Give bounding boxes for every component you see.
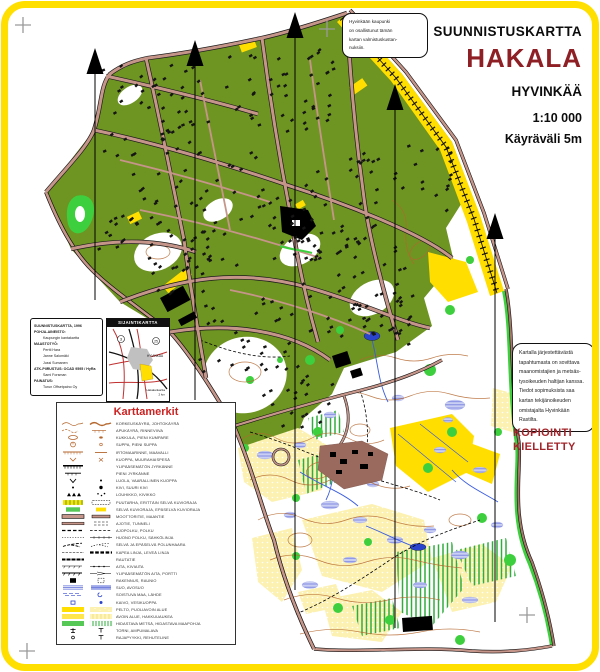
legend-label: HIDASTAVA METSÄ, HIDASTAVA MAAPOHJA xyxy=(116,621,201,626)
railway-symbol xyxy=(60,556,116,563)
locator-caption: Hakalankartta xyxy=(146,388,165,392)
legend-row: RAUTATIE xyxy=(57,556,235,563)
track-symbol xyxy=(60,527,116,534)
legend-row: RAJAPYYKKI, REHUTELINE xyxy=(57,634,235,641)
text-line: maanomistajien ja metsäs- xyxy=(519,368,588,378)
legend-row: SUPPA, PIENI SUPPA xyxy=(57,441,235,448)
contour-symbol xyxy=(60,420,116,427)
locator-caption-scale: 2 km xyxy=(158,393,165,397)
legend-box: Karttamerkit KORKEUSKÄYRÄ, JOHTOKÄYRÄAPU… xyxy=(56,402,236,645)
registration-cross xyxy=(15,17,31,33)
legend-row: AJOPOLKU, POLKU xyxy=(57,527,235,534)
legend-row: PUUTARHA, ERITTÄIN SELVÄ KUVIORAJA xyxy=(57,499,235,506)
junction-symbol xyxy=(60,541,116,548)
legend-row: MOOTTORITIE, MAANTIE xyxy=(57,513,235,520)
legend-label: YLIPÄÄSEMÄTÖN JYRKÄNNE xyxy=(116,464,173,469)
legend-label: KORKEUSKÄYRÄ, JOHTOKÄYRÄ xyxy=(116,421,179,426)
legend-label: YLIPÄÄSEMÄTÖN AITA, PORTTI xyxy=(116,571,177,576)
legend-label: LOUHIKKO, KIVIKKO xyxy=(116,492,156,497)
well-symbol xyxy=(60,599,116,606)
legend-label: SUPPA, PIENI SUPPA xyxy=(116,442,157,447)
legend-row: SELVÄ KUVIORAJA, EPÄSELVÄ KUVIORAJA xyxy=(57,506,235,513)
legend-row: KUOPPA, MUURAHAISPESÄ xyxy=(57,456,235,463)
locator-box: SIJAINTIKARTTA 3 25 HYVINKÄÄ Hakalankart… xyxy=(106,318,170,402)
legend-row: KAIVO, VESIKUOPPA xyxy=(57,599,235,606)
legend-label: MOOTTORITIE, MAANTIE xyxy=(116,514,164,519)
legend-row: HUONO POLKU, SÄHKÖLINJA xyxy=(57,534,235,541)
legend-label: AJOTIE, TUNNELI xyxy=(116,521,150,526)
legend-label: SELVÄ KUVIORAJA, EPÄSELVÄ KUVIORAJA xyxy=(116,507,200,512)
knoll-symbol xyxy=(60,434,116,441)
map-sheet: SUUNNISTUSKARTTA HAKALA HYVINKÄÄ 1:10 00… xyxy=(0,0,600,672)
legend-label: TORNI, AMPUMALAVA xyxy=(116,628,158,633)
text-line: omistajalta Hyvinkään xyxy=(519,407,588,417)
legend-row: TORNI, AMPUMALAVA xyxy=(57,627,235,634)
legend-row: SOISTUVA MAA, LÄHDE xyxy=(57,591,235,598)
permissions-note: Kartalla järjestettävästätapahtumasta on… xyxy=(512,343,595,432)
legend-label: APUKÄYRÄ, RINNEVIIVA xyxy=(116,428,163,433)
fence-symbol xyxy=(60,563,116,570)
legend-label: IRTOMAARINNE, MAAVALLI xyxy=(116,450,169,455)
legend-label: PIENI JYRKÄNNE xyxy=(116,471,149,476)
credit-line: ATK-PIIRUSTUS: OCAD 9595 / HyRa xyxy=(34,366,99,372)
legend-label: SUO, AVOSUO xyxy=(116,585,144,590)
text-line: nuksiin. xyxy=(349,44,421,53)
map-city: HYVINKÄÄ xyxy=(433,84,582,99)
text-line: Kartalla järjestettävästä xyxy=(519,349,588,359)
legend-label: AJOPOLKU, POLKU xyxy=(116,528,154,533)
legend-row: LOUHIKKO, KIVIKKO xyxy=(57,491,235,498)
north-arrow xyxy=(87,48,104,74)
legend-label: SELVÄ JA EPÄSELVÄ POLUNHAARA xyxy=(116,542,185,547)
legend-label: PELTO, PUOLIAVOIN ALUE xyxy=(116,607,167,612)
legend-label: KUKKULA, PIENI KUMPARE xyxy=(116,435,169,440)
motorway-symbol xyxy=(60,513,116,520)
legend-row: SELVÄ JA EPÄSELVÄ POLUNHAARA xyxy=(57,541,235,548)
open-symbol xyxy=(60,613,116,620)
legend-row: RAKENNUS, RAUNIO xyxy=(57,577,235,584)
legend-row: AITA, KIVIAITA xyxy=(57,563,235,570)
legend-label: KAPEA LINJA, LEVEÄ LINJA xyxy=(116,550,169,555)
legend-row: APUKÄYRÄ, RINNEVIIVA xyxy=(57,427,235,434)
text-line: kartan tekijänoikeuden xyxy=(519,397,588,407)
locator-city-label: HYVINKÄÄ xyxy=(147,354,164,358)
indistinct-symbol xyxy=(60,591,116,598)
legend-label: PUUTARHA, ERITTÄIN SELVÄ KUVIORAJA xyxy=(116,500,197,505)
locator-map: 3 25 HYVINKÄÄ Hakalankartta 2 km xyxy=(107,327,169,401)
building-symbol xyxy=(60,577,116,584)
earthbank-symbol xyxy=(60,449,116,456)
map-scale: 1:10 000 xyxy=(433,111,582,125)
pond xyxy=(410,544,426,551)
credit-line: Turun Offsetpaino Oy xyxy=(34,384,99,390)
legend-row: AVOIN ALUE, HAKKUUAUKEA xyxy=(57,613,235,620)
legend-label: RAJAPYYKKI, REHUTELINE xyxy=(116,635,169,640)
text-line: KIELLETTY xyxy=(513,441,576,455)
cairn-symbol xyxy=(60,634,116,641)
north-arrow xyxy=(287,12,304,38)
legend-row: KORKEUSKÄYRÄ, JOHTOKÄYRÄ xyxy=(57,420,235,427)
legend-label: RAUTATIE xyxy=(116,557,135,562)
map-kind: SUUNNISTUSKARTTA xyxy=(433,24,582,39)
legend-row: KUKKULA, PIENI KUMPARE xyxy=(57,434,235,441)
legend-label: SOISTUVA MAA, LÄHDE xyxy=(116,592,162,597)
legend-label: LUOLA, VAARALLINEN KUOPPA xyxy=(116,478,177,483)
text-line: tapahtumasta on sovittava xyxy=(519,359,588,369)
legend-row: SUO, AVOSUO xyxy=(57,584,235,591)
field-symbol xyxy=(60,606,116,613)
text-line: Hyvinkään kaupunki xyxy=(349,18,421,27)
legend-label: KIVI, SUURI KIVI xyxy=(116,485,148,490)
legend-row: LUOLA, VAARALLINEN KUOPPA xyxy=(57,477,235,484)
funding-note: Hyvinkään kaupunkion osallistunut tämänk… xyxy=(342,13,428,58)
stone-symbol xyxy=(60,484,116,491)
garden-symbol xyxy=(60,499,116,506)
copy-prohibited-notice: KOPIOINTIKIELLETTY xyxy=(513,427,576,454)
roadtunnel-symbol xyxy=(60,520,116,527)
aux-symbol xyxy=(60,427,116,434)
credits-box: SUUNNISTUSKARTTA, 1996POHJA-AINEISTO:Kau… xyxy=(30,318,103,396)
legend-row: KAPEA LINJA, LEVEÄ LINJA xyxy=(57,549,235,556)
marsh-symbol xyxy=(60,584,116,591)
text-line: Tiedot sopimuksista saa xyxy=(519,387,588,397)
legend-row: AJOTIE, TUNNELI xyxy=(57,520,235,527)
legend-title: Karttamerkit xyxy=(57,406,235,418)
vegb-symbol xyxy=(60,506,116,513)
title-block: SUUNNISTUSKARTTA HAKALA HYVINKÄÄ 1:10 00… xyxy=(433,24,582,146)
text-line: on osallistunut tämän xyxy=(349,27,421,36)
road-number: 25 xyxy=(154,340,158,344)
suppa-symbol xyxy=(60,441,116,448)
slowforest-symbol xyxy=(60,620,116,627)
boulder-symbol xyxy=(60,491,116,498)
cave-symbol xyxy=(60,477,116,484)
smallcliff-symbol xyxy=(60,470,116,477)
legend-row: PELTO, PUOLIAVOIN ALUE xyxy=(57,606,235,613)
ride-symbol xyxy=(60,549,116,556)
pit-symbol xyxy=(60,456,116,463)
text-line: kartan valmistuskustan- xyxy=(349,36,421,45)
text-line: KOPIOINTI xyxy=(513,427,576,441)
legend-label: KUOPPA, MUURAHAISPESÄ xyxy=(116,457,170,462)
legend-row: IRTOMAARINNE, MAAVALLI xyxy=(57,449,235,456)
legend-label: RAKENNUS, RAUNIO xyxy=(116,578,157,583)
legend-row: PIENI JYRKÄNNE xyxy=(57,470,235,477)
locator-map-area xyxy=(140,364,153,381)
legend-label: AITA, KIVIAITA xyxy=(116,564,144,569)
legend-label: AVOIN ALUE, HAKKUUAUKEA xyxy=(116,614,173,619)
text-line: Rastilta. xyxy=(519,416,588,426)
impassablecliff-symbol xyxy=(60,463,116,470)
locator-header: SIJAINTIKARTTA xyxy=(107,319,169,327)
legend-label: HUONO POLKU, SÄHKÖLINJA xyxy=(116,535,173,540)
text-line: tysoikeuden haltijan kanssa. xyxy=(519,378,588,388)
legend-row: HIDASTAVA METSÄ, HIDASTAVA MAAPOHJA xyxy=(57,620,235,627)
tower-symbol xyxy=(60,627,116,634)
park-clearing xyxy=(75,206,85,222)
legend-label: KAIVO, VESIKUOPPA xyxy=(116,600,157,605)
fencegate-symbol xyxy=(60,570,116,577)
legend-row: YLIPÄÄSEMÄTÖN AITA, PORTTI xyxy=(57,570,235,577)
contour-interval: Käyräväli 5m xyxy=(433,132,582,146)
registration-cross xyxy=(19,643,35,659)
legend-row: KIVI, SUURI KIVI xyxy=(57,484,235,491)
map-title: HAKALA xyxy=(433,43,582,74)
pathpower-symbol xyxy=(60,534,116,541)
legend-row: YLIPÄÄSEMÄTÖN JYRKÄNNE xyxy=(57,463,235,470)
